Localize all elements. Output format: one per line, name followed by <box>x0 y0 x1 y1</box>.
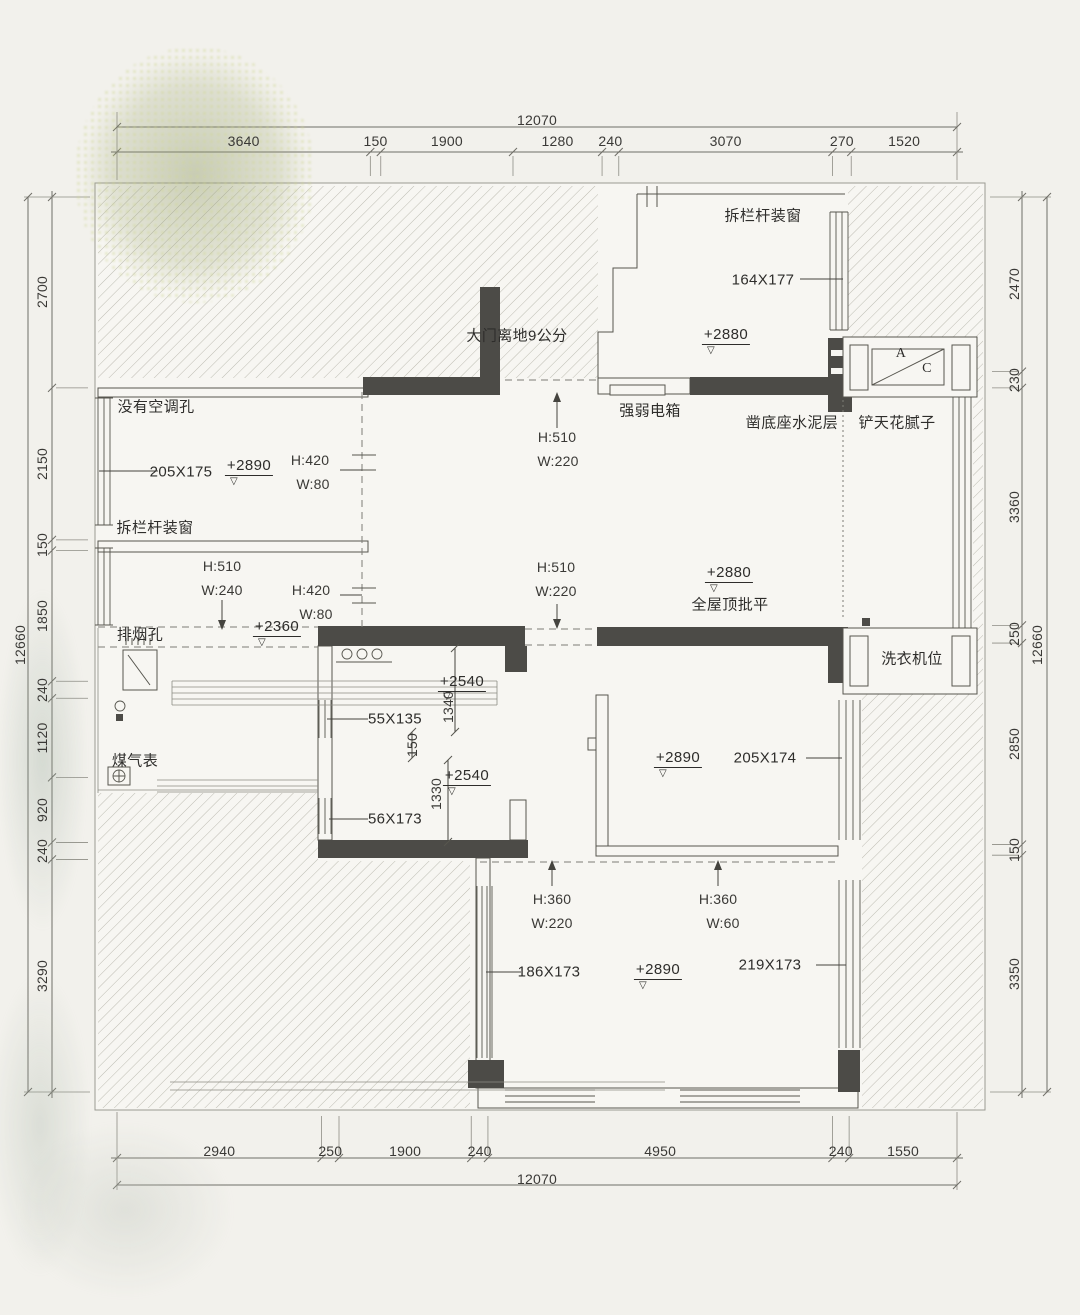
note-label: W:220 <box>537 454 578 468</box>
dim-label: 3360 <box>1007 491 1021 523</box>
note-label: H:510 <box>538 430 576 444</box>
dim-label: 270 <box>830 134 854 148</box>
note-label: 1340 <box>441 691 455 723</box>
note-label: 铲天花腻子 <box>858 416 935 431</box>
note-label: 1330 <box>429 778 443 810</box>
note-label: W:220 <box>535 584 576 598</box>
note-label: H:420 <box>291 453 329 467</box>
dim-label: 1550 <box>887 1144 919 1158</box>
level-triangle: ▽ <box>448 787 456 797</box>
note-label: 全屋顶批平 <box>691 598 768 613</box>
dim-label: 250 <box>1007 622 1021 646</box>
dim-label: 3640 <box>228 134 260 148</box>
note-label: H:510 <box>203 559 241 573</box>
note-label: 205X175 <box>150 465 213 480</box>
note-label: 150 <box>405 733 419 757</box>
dim-label: 1280 <box>542 134 574 148</box>
note-label: 205X174 <box>734 751 797 766</box>
dim-label: 3290 <box>35 960 49 992</box>
note-label: 164X177 <box>732 273 795 288</box>
level-marker: +2360 <box>253 619 301 637</box>
level-marker: +2890 <box>225 458 273 476</box>
dim-overall-label: 12660 <box>1030 625 1044 665</box>
note-label: 186X173 <box>518 965 581 980</box>
note-label: H:420 <box>292 583 330 597</box>
level-marker: +2880 <box>705 565 753 583</box>
level-triangle: ▽ <box>707 346 715 356</box>
dim-label: 1520 <box>888 134 920 148</box>
dim-label: 240 <box>598 134 622 148</box>
note-label: W:240 <box>201 583 242 597</box>
level-triangle: ▽ <box>659 769 667 779</box>
dim-overall-label: 12070 <box>517 113 557 127</box>
note-label: C <box>922 362 932 376</box>
level-marker: +2540 <box>438 674 486 692</box>
note-label: 洗衣机位 <box>881 652 943 667</box>
dim-label: 1900 <box>431 134 463 148</box>
level-triangle: ▽ <box>710 584 718 594</box>
dim-label: 2470 <box>1007 268 1021 300</box>
dim-overall-label: 12660 <box>13 625 27 665</box>
dim-overall-label: 12070 <box>517 1172 557 1186</box>
note-label: 煤气表 <box>112 754 158 769</box>
dim-label: 3070 <box>710 134 742 148</box>
note-label: H:360 <box>699 892 737 906</box>
note-label: 排烟孔 <box>117 628 163 643</box>
dim-label: 1120 <box>35 722 49 753</box>
note-label: H:360 <box>533 892 571 906</box>
dim-label: 2700 <box>35 276 49 308</box>
dim-label: 240 <box>829 1144 853 1158</box>
dim-label: 2940 <box>203 1144 235 1158</box>
level-marker: +2880 <box>702 327 750 345</box>
note-label: 55X135 <box>368 712 422 727</box>
dim-label: 2150 <box>35 448 49 480</box>
dim-label: 240 <box>468 1144 492 1158</box>
note-label: 大门离地9公分 <box>466 329 567 344</box>
note-label: 没有空调孔 <box>117 400 194 415</box>
dim-label: 240 <box>35 678 49 702</box>
note-label: 219X173 <box>739 958 802 973</box>
note-label: 强弱电箱 <box>619 404 681 419</box>
dim-label: 150 <box>364 134 388 148</box>
dim-label: 920 <box>35 798 49 822</box>
dim-label: 150 <box>1007 838 1021 862</box>
level-triangle: ▽ <box>230 477 238 487</box>
note-label: A <box>896 347 907 361</box>
dim-label: 2850 <box>1007 728 1021 760</box>
dim-label: 240 <box>35 839 49 863</box>
dim-label: 150 <box>35 533 49 557</box>
dim-label: 1900 <box>389 1144 421 1158</box>
note-label: H:510 <box>537 560 575 574</box>
dim-label: 230 <box>1007 368 1021 392</box>
note-label: W:80 <box>296 477 329 491</box>
plan-labels: 拆栏杆装窗164X177+2880▽大门离地9公分强弱电箱凿底座水泥层铲天花腻子… <box>0 0 1080 1315</box>
note-label: W:60 <box>706 916 739 930</box>
dim-label: 4950 <box>644 1144 676 1158</box>
note-label: W:80 <box>299 607 332 621</box>
note-label: 拆栏杆装窗 <box>116 521 193 536</box>
level-triangle: ▽ <box>258 638 266 648</box>
note-label: 凿底座水泥层 <box>746 416 838 431</box>
dim-label: 3350 <box>1007 958 1021 990</box>
note-label: 56X173 <box>368 812 422 827</box>
level-triangle: ▽ <box>639 981 647 991</box>
floor-plan-page: 拆栏杆装窗164X177+2880▽大门离地9公分强弱电箱凿底座水泥层铲天花腻子… <box>0 0 1080 1315</box>
note-label: 拆栏杆装窗 <box>724 209 801 224</box>
note-label: W:220 <box>531 916 572 930</box>
level-marker: +2890 <box>634 962 682 980</box>
level-marker: +2890 <box>654 750 702 768</box>
dim-label: 1850 <box>35 600 49 632</box>
level-marker: +2540 <box>443 768 491 786</box>
dim-label: 250 <box>318 1144 342 1158</box>
